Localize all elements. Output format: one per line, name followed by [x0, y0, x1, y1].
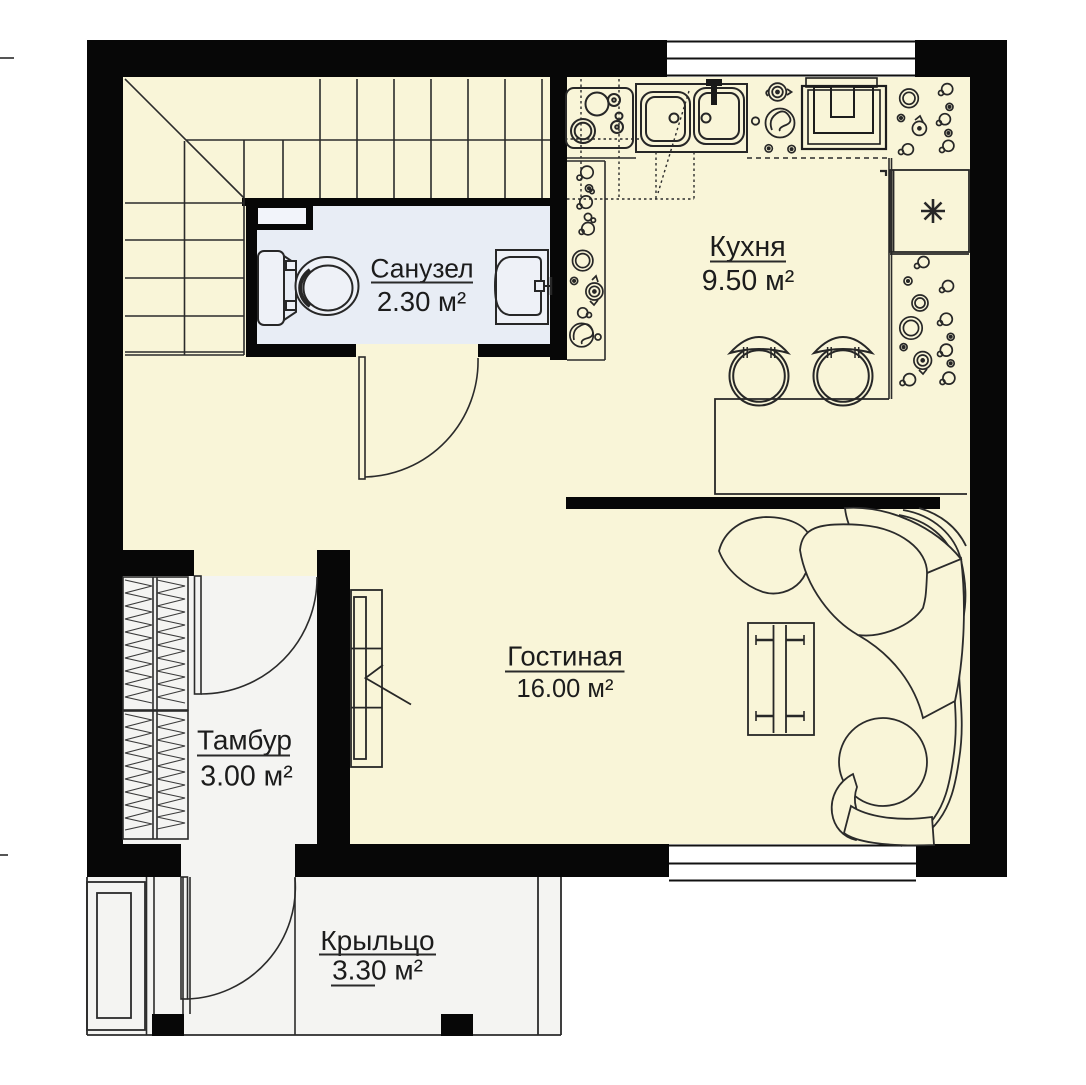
svg-text:Санузел: Санузел — [370, 254, 473, 284]
svg-text:Крыльцо: Крыльцо — [320, 925, 434, 956]
svg-text:9.50 м²: 9.50 м² — [702, 265, 794, 297]
svg-text:Тамбур: Тамбур — [197, 725, 292, 756]
svg-text:2.30 м²: 2.30 м² — [377, 286, 466, 317]
svg-text:3.00 м²: 3.00 м² — [200, 761, 292, 793]
svg-text:16.00 м²: 16.00 м² — [517, 675, 614, 703]
svg-text:Гостиная: Гостиная — [507, 641, 622, 672]
svg-text:3.30 м²: 3.30 м² — [332, 955, 423, 986]
svg-text:Кухня: Кухня — [709, 231, 785, 263]
